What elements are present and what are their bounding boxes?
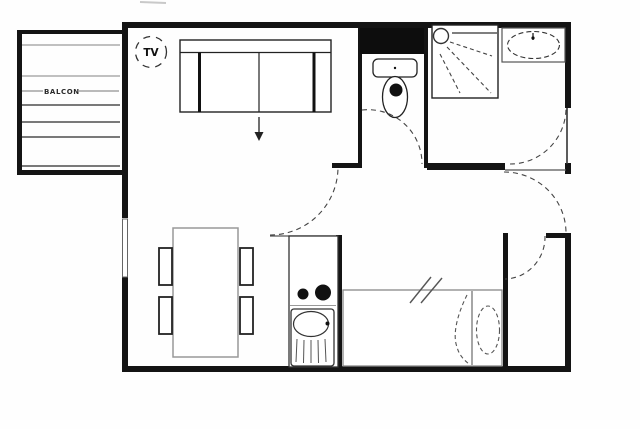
wall-right-upper — [565, 22, 571, 108]
wall-left-upper — [122, 22, 128, 218]
toilet-bowl — [383, 77, 408, 118]
toilet-seat-dot — [390, 84, 403, 97]
wall-top — [122, 22, 571, 28]
hob-burner-small — [298, 289, 309, 300]
dining-set — [159, 228, 253, 357]
bathroom-door-arc — [510, 108, 566, 164]
arrow-head-icon — [255, 132, 264, 141]
balcony-top-rail — [17, 30, 122, 34]
wall-right-stub — [565, 163, 571, 174]
entry-door-arc — [504, 172, 566, 233]
chair — [159, 248, 172, 285]
shower — [432, 25, 498, 98]
tv-unit: TV — [136, 37, 167, 68]
scan-artifact — [140, 2, 166, 3]
balcony-bottom-rail — [17, 170, 122, 175]
chair — [240, 297, 253, 334]
kitchen — [289, 236, 338, 367]
hob-burner-large — [315, 285, 331, 301]
bed — [343, 277, 502, 366]
tv-label: TV — [143, 47, 159, 59]
sofa-outline — [180, 40, 331, 112]
closet-door-arc — [505, 236, 545, 279]
wall-closet-top-stub — [546, 233, 571, 238]
wc-door-arc — [362, 110, 422, 164]
wall-left-lower — [122, 277, 128, 372]
balcony: BALCON — [17, 30, 122, 175]
wall-bathroom-bottom — [427, 163, 505, 170]
hall-door-arc — [270, 167, 338, 235]
toilet-button — [394, 67, 396, 69]
shower-tray — [432, 25, 498, 98]
balcony-deck-lines — [22, 45, 120, 166]
balcony-label: BALCON — [44, 88, 80, 96]
dining-table — [173, 228, 238, 357]
floor-plan-page: BALCON TV — [0, 0, 640, 429]
sofa — [180, 40, 331, 112]
wall-right-lower — [565, 233, 571, 372]
wall-wc-right — [424, 28, 428, 168]
window — [123, 219, 128, 277]
floor-plan: BALCON TV — [0, 0, 640, 429]
chair — [240, 248, 253, 285]
sofa-arrow — [255, 117, 264, 141]
kitchen-tap-icon — [326, 322, 330, 326]
wall-wc-bottom-stub — [332, 163, 362, 168]
toilet — [373, 59, 417, 118]
washbasin-tap-dot — [531, 36, 534, 39]
kitchen-sink-unit — [291, 309, 334, 366]
washbasin — [502, 28, 565, 62]
wc-duct — [360, 28, 424, 54]
wall-closet — [503, 233, 508, 367]
balcony-left-rail — [17, 30, 22, 175]
chair — [159, 297, 172, 334]
